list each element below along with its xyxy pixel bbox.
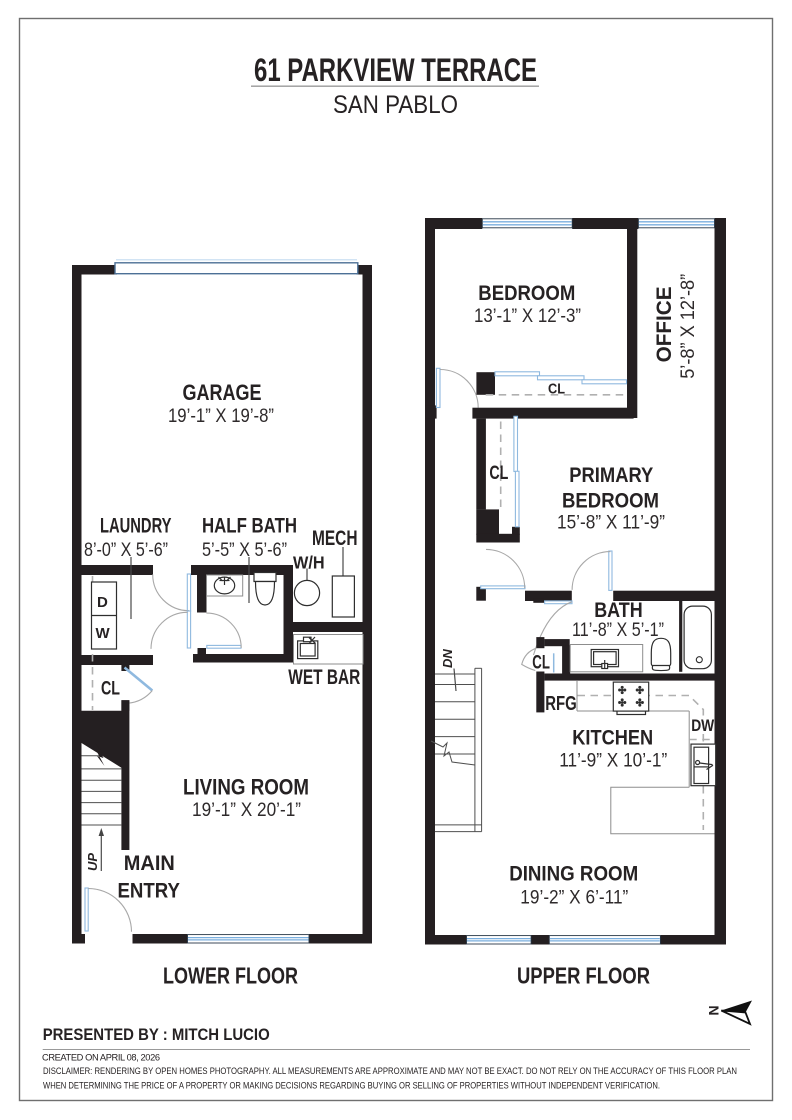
- svg-text:15’-8” X 11’-9”: 15’-8” X 11’-9”: [557, 512, 665, 534]
- svg-text:DW: DW: [691, 717, 714, 735]
- svg-text:UPPER FLOOR: UPPER FLOOR: [517, 963, 650, 989]
- svg-text:DINING ROOM: DINING ROOM: [509, 863, 638, 886]
- svg-text:WET BAR: WET BAR: [288, 666, 360, 689]
- svg-text:DN: DN: [440, 649, 455, 668]
- svg-text:DISCLAIMER: RENDERING BY OPEN: DISCLAIMER: RENDERING BY OPEN HOMES PHOT…: [43, 1066, 737, 1077]
- svg-text:N: N: [706, 1005, 722, 1015]
- svg-text:SAN PABLO: SAN PABLO: [333, 91, 458, 119]
- svg-text:8’-0” X 5’-6”: 8’-0” X 5’-6”: [84, 540, 168, 561]
- svg-text:ENTRY: ENTRY: [118, 880, 181, 903]
- svg-text:D: D: [97, 594, 108, 611]
- svg-text:19’-2” X 6’-11”: 19’-2” X 6’-11”: [520, 887, 628, 909]
- svg-text:MECH: MECH: [312, 527, 358, 550]
- svg-text:W: W: [96, 625, 111, 642]
- svg-text:BEDROOM: BEDROOM: [562, 490, 659, 513]
- svg-text:GARAGE: GARAGE: [183, 380, 262, 405]
- svg-text:MAIN: MAIN: [124, 852, 175, 875]
- svg-text:11’-8” X 5’-1”: 11’-8” X 5’-1”: [572, 620, 664, 641]
- svg-text:LIVING ROOM: LIVING ROOM: [183, 775, 309, 800]
- svg-text:19’-1” X 20’-1”: 19’-1” X 20’-1”: [192, 799, 301, 821]
- svg-text:WHEN DETERMINING THE PRICE OF: WHEN DETERMINING THE PRICE OF A PROPERTY…: [43, 1081, 660, 1092]
- svg-text:BATH: BATH: [594, 599, 643, 622]
- svg-text:11’-9” X 10’-1”: 11’-9” X 10’-1”: [559, 750, 667, 772]
- svg-text:UP: UP: [85, 853, 100, 871]
- svg-text:PRESENTED BY : MITCH LUCIO: PRESENTED BY : MITCH LUCIO: [43, 1025, 270, 1044]
- svg-text:CREATED ON APRIL 08, 2026: CREATED ON APRIL 08, 2026: [42, 1053, 160, 1063]
- svg-text:13’-1” X 12’-3”: 13’-1” X 12’-3”: [474, 305, 581, 327]
- svg-text:CL: CL: [101, 679, 120, 700]
- svg-text:5’-5” X 5’-6”: 5’-5” X 5’-6”: [202, 540, 287, 561]
- svg-text:BEDROOM: BEDROOM: [478, 282, 575, 305]
- svg-text:LAUNDRY: LAUNDRY: [100, 515, 172, 538]
- svg-text:KITCHEN: KITCHEN: [572, 726, 653, 749]
- svg-text:5’-8” X 12’-8”: 5’-8” X 12’-8”: [678, 274, 699, 379]
- svg-text:CL: CL: [548, 381, 565, 397]
- svg-text:61 PARKVIEW TERRACE: 61 PARKVIEW TERRACE: [254, 52, 537, 88]
- svg-text:19’-1” X 19’-8”: 19’-1” X 19’-8”: [168, 405, 274, 427]
- svg-text:W/H: W/H: [293, 553, 325, 573]
- svg-text:CL: CL: [532, 652, 550, 673]
- svg-text:CL: CL: [489, 463, 508, 484]
- svg-text:LOWER FLOOR: LOWER FLOOR: [163, 963, 298, 989]
- svg-text:HALF BATH: HALF BATH: [202, 515, 297, 538]
- svg-text:OFFICE: OFFICE: [653, 286, 676, 362]
- svg-text:PRIMARY: PRIMARY: [569, 464, 653, 487]
- svg-text:RFG: RFG: [545, 693, 577, 715]
